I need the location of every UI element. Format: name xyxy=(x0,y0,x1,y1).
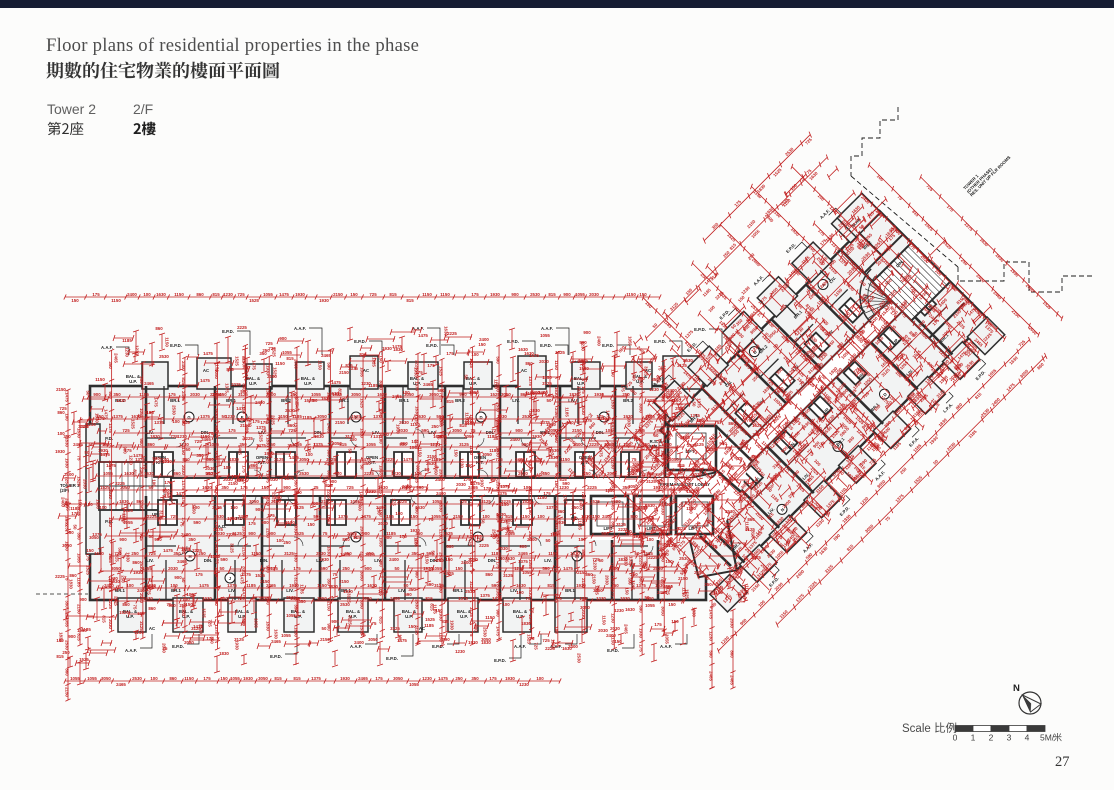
svg-text:1525: 1525 xyxy=(255,573,265,578)
svg-text:2030: 2030 xyxy=(108,489,113,499)
svg-text:2465: 2465 xyxy=(116,682,126,687)
svg-text:3125: 3125 xyxy=(542,381,552,386)
svg-text:2400: 2400 xyxy=(358,501,363,511)
svg-text:150: 150 xyxy=(454,449,459,457)
svg-text:2225: 2225 xyxy=(447,331,457,336)
svg-text:50: 50 xyxy=(645,595,650,600)
svg-text:1055: 1055 xyxy=(665,634,670,644)
svg-text:N: N xyxy=(1013,683,1020,694)
svg-text:815: 815 xyxy=(56,654,64,659)
svg-text:725: 725 xyxy=(265,341,273,346)
svg-text:860: 860 xyxy=(342,537,350,542)
svg-text:2530: 2530 xyxy=(299,471,309,476)
svg-text:1055: 1055 xyxy=(263,292,273,297)
svg-text:2030: 2030 xyxy=(378,521,388,526)
svg-text:175: 175 xyxy=(581,386,586,394)
svg-text:2400: 2400 xyxy=(390,596,400,601)
svg-text:100: 100 xyxy=(223,465,231,470)
svg-text:1230: 1230 xyxy=(327,514,332,524)
svg-text:900: 900 xyxy=(519,544,527,549)
svg-text:2530: 2530 xyxy=(285,408,295,413)
svg-text:350: 350 xyxy=(287,443,295,448)
svg-text:350: 350 xyxy=(298,599,306,604)
svg-text:1375: 1375 xyxy=(214,624,219,634)
svg-text:1630: 1630 xyxy=(274,629,279,639)
svg-text:1930: 1930 xyxy=(243,676,253,681)
svg-text:175: 175 xyxy=(638,644,643,652)
svg-text:250: 250 xyxy=(283,540,291,545)
svg-text:2030: 2030 xyxy=(438,469,443,479)
svg-text:590: 590 xyxy=(404,592,412,597)
svg-text:1525: 1525 xyxy=(359,398,364,408)
svg-text:1475: 1475 xyxy=(236,406,246,411)
svg-text:3050: 3050 xyxy=(258,676,268,681)
svg-text:150: 150 xyxy=(455,566,463,571)
svg-text:1930: 1930 xyxy=(396,424,401,434)
svg-text:725: 725 xyxy=(64,476,69,484)
svg-text:2465: 2465 xyxy=(327,423,332,433)
svg-text:860: 860 xyxy=(169,676,177,681)
svg-text:2150: 2150 xyxy=(427,454,437,459)
svg-text:2150: 2150 xyxy=(64,687,69,697)
svg-text:100: 100 xyxy=(411,439,419,444)
svg-text:150: 150 xyxy=(350,292,358,297)
svg-text:860: 860 xyxy=(122,602,130,607)
svg-text:2530: 2530 xyxy=(64,640,69,650)
svg-text:1830: 1830 xyxy=(328,584,338,589)
svg-text:50: 50 xyxy=(86,391,91,396)
svg-text:3050: 3050 xyxy=(663,584,673,589)
svg-text:900: 900 xyxy=(327,449,332,457)
svg-text:3125: 3125 xyxy=(481,499,491,504)
svg-text:1930: 1930 xyxy=(468,640,478,645)
svg-text:1230: 1230 xyxy=(460,458,465,468)
svg-text:A.A.F.: A.A.F. xyxy=(514,644,526,649)
svg-text:1475: 1475 xyxy=(133,453,143,458)
svg-text:1150: 1150 xyxy=(192,504,197,514)
svg-text:900: 900 xyxy=(255,507,263,512)
svg-text:2225: 2225 xyxy=(327,489,332,499)
svg-text:3050: 3050 xyxy=(379,380,384,390)
svg-text:50: 50 xyxy=(464,375,469,380)
svg-text:860: 860 xyxy=(611,521,616,529)
svg-text:175: 175 xyxy=(471,292,479,297)
svg-text:860: 860 xyxy=(485,572,493,577)
svg-text:815: 815 xyxy=(441,619,449,624)
svg-text:A.A.F.: A.A.F. xyxy=(125,648,137,653)
svg-text:900: 900 xyxy=(379,559,384,567)
svg-text:1055: 1055 xyxy=(628,336,633,346)
svg-text:1230: 1230 xyxy=(135,345,140,355)
svg-text:1930: 1930 xyxy=(450,620,455,630)
svg-text:E.P.D.: E.P.D. xyxy=(426,343,438,348)
svg-text:100: 100 xyxy=(646,537,654,542)
svg-text:900: 900 xyxy=(279,336,287,341)
svg-text:2465: 2465 xyxy=(624,624,629,634)
svg-text:2030: 2030 xyxy=(605,575,610,585)
svg-text:1930: 1930 xyxy=(295,292,305,297)
svg-text:1230: 1230 xyxy=(86,422,96,427)
svg-text:100: 100 xyxy=(99,505,107,510)
svg-text:1475: 1475 xyxy=(181,494,186,504)
svg-text:350: 350 xyxy=(471,676,479,681)
svg-text:1185: 1185 xyxy=(424,623,434,628)
svg-text:1375: 1375 xyxy=(528,376,533,386)
svg-text:2030: 2030 xyxy=(729,618,734,628)
svg-text:250: 250 xyxy=(121,575,126,583)
svg-text:175: 175 xyxy=(97,416,105,421)
svg-text:1475: 1475 xyxy=(359,491,364,501)
svg-text:50: 50 xyxy=(271,442,276,447)
svg-text:2530: 2530 xyxy=(159,354,169,359)
svg-text:1830: 1830 xyxy=(229,457,239,462)
svg-text:1185: 1185 xyxy=(300,584,305,594)
svg-text:175: 175 xyxy=(252,419,260,424)
svg-text:1475: 1475 xyxy=(203,351,213,356)
svg-text:2150: 2150 xyxy=(321,499,331,504)
svg-text:2225: 2225 xyxy=(397,499,407,504)
svg-text:590: 590 xyxy=(205,471,213,476)
svg-text:100: 100 xyxy=(409,445,417,450)
svg-text:1055: 1055 xyxy=(108,553,113,563)
svg-text:900: 900 xyxy=(220,596,228,601)
svg-text:E.P.D.: E.P.D. xyxy=(386,656,398,661)
svg-text:1830: 1830 xyxy=(611,399,616,409)
svg-text:2030: 2030 xyxy=(242,526,247,536)
svg-text:3125: 3125 xyxy=(640,538,645,548)
svg-text:75: 75 xyxy=(143,465,148,470)
svg-text:725: 725 xyxy=(170,514,178,519)
svg-text:3125: 3125 xyxy=(365,552,375,557)
svg-text:U.P.: U.P. xyxy=(249,381,257,386)
svg-text:1930: 1930 xyxy=(202,596,212,601)
svg-text:1630: 1630 xyxy=(327,546,332,556)
svg-text:2030: 2030 xyxy=(184,640,194,645)
svg-text:1055: 1055 xyxy=(359,367,364,377)
svg-text:75: 75 xyxy=(361,632,366,637)
svg-text:1150: 1150 xyxy=(111,298,121,303)
svg-text:1375: 1375 xyxy=(307,443,312,453)
svg-text:2400: 2400 xyxy=(64,472,74,477)
svg-text:350: 350 xyxy=(64,600,69,608)
svg-text:860: 860 xyxy=(148,606,156,611)
svg-text:1830: 1830 xyxy=(570,551,580,556)
svg-text:1150: 1150 xyxy=(626,292,636,297)
svg-text:3050: 3050 xyxy=(669,457,679,462)
svg-text:2400: 2400 xyxy=(181,532,191,537)
svg-text:1525: 1525 xyxy=(443,531,453,536)
svg-text:1930: 1930 xyxy=(410,528,420,533)
svg-text:350: 350 xyxy=(293,604,298,612)
svg-text:1055: 1055 xyxy=(286,613,296,618)
svg-text:2465: 2465 xyxy=(518,551,528,556)
svg-text:175: 175 xyxy=(203,676,211,681)
svg-text:1525: 1525 xyxy=(272,347,277,357)
svg-text:100: 100 xyxy=(624,529,632,534)
svg-text:250: 250 xyxy=(431,424,439,429)
svg-text:1525: 1525 xyxy=(235,356,240,366)
svg-text:1185: 1185 xyxy=(144,410,154,415)
svg-text:2400: 2400 xyxy=(510,437,520,442)
svg-text:1630: 1630 xyxy=(156,292,166,297)
svg-text:1150: 1150 xyxy=(184,676,194,681)
svg-text:1630: 1630 xyxy=(581,431,586,441)
svg-text:50: 50 xyxy=(547,398,552,403)
svg-text:815: 815 xyxy=(286,356,294,361)
svg-text:E.P.D.: E.P.D. xyxy=(354,339,366,344)
svg-text:150: 150 xyxy=(668,602,676,607)
svg-text:50: 50 xyxy=(181,578,186,583)
svg-text:3050: 3050 xyxy=(249,499,259,504)
svg-text:2150: 2150 xyxy=(76,604,81,614)
svg-text:150: 150 xyxy=(408,624,416,629)
svg-text:5M/: 5M/ xyxy=(1040,733,1055,743)
svg-text:860: 860 xyxy=(287,423,295,428)
svg-text:2225: 2225 xyxy=(479,543,489,548)
svg-text:2465: 2465 xyxy=(295,402,300,412)
svg-text:1630: 1630 xyxy=(516,583,526,588)
svg-text:175: 175 xyxy=(71,511,79,516)
svg-text:815: 815 xyxy=(115,554,120,562)
svg-text:3050: 3050 xyxy=(111,566,121,571)
svg-text:1475: 1475 xyxy=(252,360,257,370)
svg-text:900: 900 xyxy=(414,570,419,578)
svg-text:1375: 1375 xyxy=(348,366,358,371)
svg-text:1375: 1375 xyxy=(697,398,702,408)
svg-text:900: 900 xyxy=(331,619,339,624)
svg-text:250: 250 xyxy=(704,582,712,587)
svg-text:590: 590 xyxy=(320,566,328,571)
svg-text:175: 175 xyxy=(92,292,100,297)
svg-text:BR.1: BR.1 xyxy=(565,588,575,593)
svg-text:LIV.: LIV. xyxy=(228,588,235,593)
svg-text:2465: 2465 xyxy=(144,381,154,386)
svg-text:1930: 1930 xyxy=(319,557,329,562)
svg-text:1475: 1475 xyxy=(708,609,713,619)
svg-text:1525: 1525 xyxy=(79,657,89,662)
svg-text:1930: 1930 xyxy=(181,547,191,552)
svg-text:100: 100 xyxy=(471,352,479,357)
svg-text:3125: 3125 xyxy=(469,581,474,591)
svg-text:1830: 1830 xyxy=(266,437,271,447)
svg-text:75: 75 xyxy=(333,572,338,577)
svg-text:2400: 2400 xyxy=(402,484,412,489)
svg-text:2400: 2400 xyxy=(579,500,584,510)
svg-text:A.A.F.: A.A.F. xyxy=(101,345,113,350)
svg-text:900: 900 xyxy=(248,531,256,536)
svg-text:150: 150 xyxy=(625,587,630,595)
svg-text:4: 4 xyxy=(1025,733,1030,743)
svg-text:D: D xyxy=(479,415,482,420)
svg-text:2225: 2225 xyxy=(272,492,277,502)
svg-text:900: 900 xyxy=(583,330,591,335)
svg-text:3125: 3125 xyxy=(274,457,284,462)
svg-text:75: 75 xyxy=(323,531,328,536)
svg-text:1830: 1830 xyxy=(530,408,540,413)
svg-text:2150: 2150 xyxy=(278,414,288,419)
svg-text:2150: 2150 xyxy=(320,637,330,642)
svg-text:900: 900 xyxy=(327,623,332,631)
svg-text:900: 900 xyxy=(262,495,270,500)
svg-text:3050: 3050 xyxy=(351,392,361,397)
svg-text:2465: 2465 xyxy=(729,675,734,685)
svg-text:2465: 2465 xyxy=(177,559,187,564)
svg-text:1525: 1525 xyxy=(595,585,600,595)
svg-text:590: 590 xyxy=(437,388,445,393)
svg-text:2530: 2530 xyxy=(577,653,582,663)
svg-text:2400: 2400 xyxy=(354,640,364,645)
svg-text:725: 725 xyxy=(474,534,482,539)
svg-text:1930: 1930 xyxy=(638,628,643,638)
svg-text:2465: 2465 xyxy=(321,353,331,358)
svg-text:LIV.: LIV. xyxy=(146,558,153,563)
svg-text:590: 590 xyxy=(220,557,228,562)
svg-text:50: 50 xyxy=(554,463,559,468)
svg-text:1475: 1475 xyxy=(611,587,616,597)
svg-text:860: 860 xyxy=(557,509,565,514)
svg-text:50: 50 xyxy=(635,551,640,556)
svg-text:1525: 1525 xyxy=(76,476,81,486)
svg-text:2030: 2030 xyxy=(316,551,326,556)
svg-text:1185: 1185 xyxy=(368,383,378,388)
svg-text:AC: AC xyxy=(521,368,527,373)
svg-text:2530: 2530 xyxy=(172,405,177,415)
svg-text:815: 815 xyxy=(102,615,107,623)
svg-text:2225: 2225 xyxy=(243,436,253,441)
svg-text:1055: 1055 xyxy=(575,292,585,297)
svg-text:1630: 1630 xyxy=(293,627,298,637)
svg-text:2030: 2030 xyxy=(139,593,144,603)
svg-text:2030: 2030 xyxy=(498,546,508,551)
svg-text:1055: 1055 xyxy=(108,460,113,470)
svg-text:1475: 1475 xyxy=(279,292,289,297)
svg-text:1185: 1185 xyxy=(414,537,419,547)
svg-text:900: 900 xyxy=(266,565,271,573)
svg-text:250: 250 xyxy=(131,551,139,556)
svg-text:815: 815 xyxy=(547,583,555,588)
svg-text:3050: 3050 xyxy=(89,535,99,540)
svg-text:815: 815 xyxy=(212,292,220,297)
svg-text:590: 590 xyxy=(168,603,176,608)
svg-text:1830: 1830 xyxy=(69,579,74,589)
svg-text:860: 860 xyxy=(525,361,533,366)
svg-text:2400: 2400 xyxy=(127,292,137,297)
svg-text:175: 175 xyxy=(240,485,248,490)
svg-text:590: 590 xyxy=(491,583,499,588)
svg-text:1630: 1630 xyxy=(143,596,153,601)
svg-text:2225: 2225 xyxy=(385,457,395,462)
svg-text:1930: 1930 xyxy=(490,533,500,538)
svg-text:50: 50 xyxy=(611,543,616,548)
svg-text:2225: 2225 xyxy=(648,555,658,560)
svg-text:815: 815 xyxy=(389,292,397,297)
svg-text:1475: 1475 xyxy=(200,378,210,383)
svg-text:100: 100 xyxy=(402,390,410,395)
svg-text:3125: 3125 xyxy=(230,543,235,553)
svg-text:3050: 3050 xyxy=(393,676,403,681)
svg-text:1930: 1930 xyxy=(96,499,101,509)
svg-text:1930: 1930 xyxy=(227,516,237,521)
svg-text:E.P.D.: E.P.D. xyxy=(694,327,706,332)
svg-text:1185: 1185 xyxy=(578,520,583,530)
svg-text:3050: 3050 xyxy=(501,392,511,397)
svg-text:1830: 1830 xyxy=(521,621,531,626)
svg-text:175: 175 xyxy=(248,521,256,526)
svg-text:860: 860 xyxy=(173,471,181,476)
svg-text:590: 590 xyxy=(562,481,570,486)
svg-text:1525: 1525 xyxy=(438,366,443,376)
svg-text:1055: 1055 xyxy=(87,676,97,681)
svg-text:860: 860 xyxy=(266,597,271,605)
svg-text:1150: 1150 xyxy=(469,445,474,455)
svg-text:1830: 1830 xyxy=(438,502,443,512)
svg-text:1055: 1055 xyxy=(281,633,291,638)
svg-text:DIN.: DIN. xyxy=(596,430,605,435)
svg-text:860: 860 xyxy=(729,650,734,658)
svg-text:50: 50 xyxy=(546,538,551,543)
svg-text:1475: 1475 xyxy=(468,536,473,546)
svg-text:2400: 2400 xyxy=(389,557,399,562)
svg-text:1830: 1830 xyxy=(293,552,298,562)
svg-text:815: 815 xyxy=(406,298,414,303)
svg-text:175: 175 xyxy=(195,572,203,577)
svg-text:1150: 1150 xyxy=(422,292,432,297)
svg-text:860: 860 xyxy=(400,441,408,446)
svg-text:1375: 1375 xyxy=(210,554,220,559)
svg-text:50: 50 xyxy=(599,558,604,563)
svg-text:100: 100 xyxy=(536,676,544,681)
svg-text:Tower 2: Tower 2 xyxy=(47,101,96,117)
svg-text:1375: 1375 xyxy=(500,484,510,489)
svg-text:900: 900 xyxy=(68,634,76,639)
svg-text:1230: 1230 xyxy=(611,613,616,623)
svg-text:2030: 2030 xyxy=(190,392,200,397)
svg-text:175: 175 xyxy=(489,676,497,681)
svg-text:250: 250 xyxy=(637,376,645,381)
svg-text:350: 350 xyxy=(293,479,298,487)
svg-text:1375: 1375 xyxy=(311,676,321,681)
svg-text:3050: 3050 xyxy=(464,434,474,439)
svg-text:3050: 3050 xyxy=(368,637,378,642)
svg-text:2400: 2400 xyxy=(554,519,559,529)
svg-text:1055: 1055 xyxy=(379,537,384,547)
svg-text:3050: 3050 xyxy=(101,676,111,681)
svg-text:2030: 2030 xyxy=(108,619,113,629)
svg-text:AC: AC xyxy=(149,626,155,631)
svg-text:2030: 2030 xyxy=(379,432,389,437)
svg-text:1185: 1185 xyxy=(70,506,80,511)
svg-text:900: 900 xyxy=(283,485,291,490)
svg-text:LIV.: LIV. xyxy=(286,588,293,593)
svg-text:350: 350 xyxy=(414,506,419,514)
svg-text:590: 590 xyxy=(495,356,500,364)
svg-text:50: 50 xyxy=(85,450,90,455)
svg-text:860: 860 xyxy=(196,292,204,297)
svg-text:3125: 3125 xyxy=(503,573,513,578)
svg-text:900: 900 xyxy=(261,520,269,525)
svg-text:1830: 1830 xyxy=(266,621,271,631)
svg-text:900: 900 xyxy=(139,438,144,446)
svg-text:1475: 1475 xyxy=(563,566,573,571)
svg-text:1630: 1630 xyxy=(367,583,377,588)
svg-text:2225: 2225 xyxy=(364,471,374,476)
svg-text:175: 175 xyxy=(415,370,423,375)
svg-text:175: 175 xyxy=(654,622,662,627)
svg-text:1375: 1375 xyxy=(256,425,266,430)
svg-text:150: 150 xyxy=(554,480,559,488)
svg-text:1150: 1150 xyxy=(425,554,430,564)
svg-text:BR.2: BR.2 xyxy=(455,398,465,403)
